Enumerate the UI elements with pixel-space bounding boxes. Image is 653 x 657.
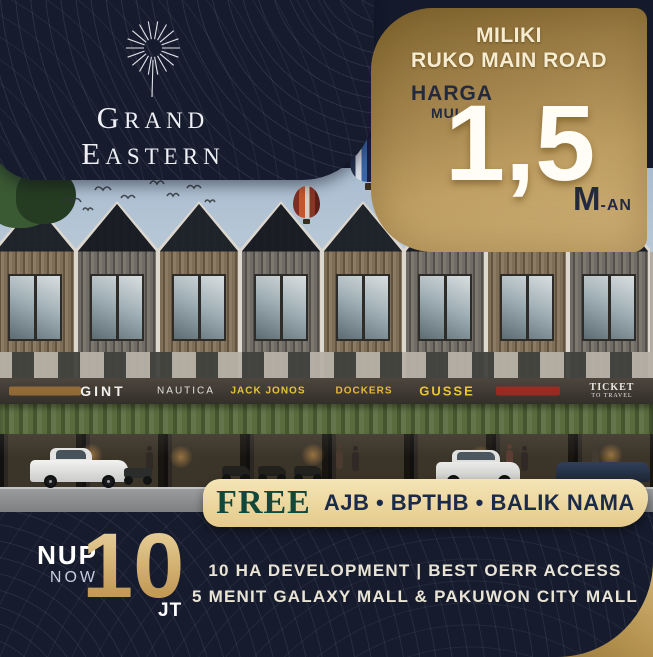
shop-sign-illegible-red — [496, 387, 560, 396]
car-window — [457, 452, 495, 460]
pedestrian — [336, 450, 343, 469]
pedestrian — [352, 452, 359, 471]
hedge-planter — [0, 404, 653, 434]
wheel — [44, 475, 57, 488]
bicycle — [124, 468, 152, 478]
shop-sign-ticket: TICKET TO TRAVEL — [590, 382, 635, 400]
car-window — [56, 450, 86, 459]
motorbike — [258, 466, 286, 476]
motorbike — [294, 466, 322, 476]
motorbike — [222, 466, 250, 476]
pickup-truck — [30, 446, 128, 488]
shop-sign-jack-jonos: JACK JONOS — [230, 386, 305, 397]
shop-sign-gusse: GUSSE — [419, 384, 475, 399]
pedestrian — [521, 452, 528, 471]
shop-sign-illegible — [9, 387, 81, 396]
dandelion-starburst-icon — [118, 18, 188, 98]
free-benefits-banner: FREE AJB • BPTHB • BALIK NAMA — [203, 479, 648, 527]
shop-light — [168, 446, 194, 468]
shop-sign-dockers: DOCKERS — [335, 386, 392, 397]
balcony-band — [0, 352, 653, 379]
shop-sign-gint: GINT — [80, 383, 125, 399]
nup-value: 10 — [82, 520, 184, 612]
nup-unit: JT — [158, 600, 182, 622]
hot-air-balloon-icon — [293, 186, 320, 224]
shop-light — [300, 444, 326, 466]
bottom-info-band: NUP NOW 10 JT 10 HA DEVELOPMENT | BEST O… — [0, 512, 653, 657]
property-ad-poster: GINT NAUTICA JACK JONOS DOCKERS GUSSE TI… — [0, 0, 653, 657]
offer-headline-line1: MILIKI — [371, 24, 647, 48]
free-items: AJB • BPTHB • BALIK NAMA — [324, 490, 635, 516]
brand-name-line1: Grand — [48, 100, 258, 136]
price-unit: M-AN — [573, 180, 632, 218]
shop-sign-band: GINT NAUTICA JACK JONOS DOCKERS GUSSE TI… — [0, 378, 653, 404]
brand-panel: Grand Eastern — [0, 0, 374, 180]
brand-name-line2: Eastern — [48, 136, 258, 172]
offer-headline-line2: RUKO MAIN ROAD — [371, 49, 647, 73]
shop-sign-nautica: NAUTICA — [157, 386, 215, 397]
price-offer-panel: MILIKI RUKO MAIN ROAD HARGA MULAI 1,5 M-… — [371, 8, 647, 252]
wheel — [102, 475, 115, 488]
brand-logo: Grand Eastern — [48, 18, 258, 171]
free-label: FREE — [216, 484, 311, 522]
footer-usp-text: 10 HA DEVELOPMENT | BEST OERR ACCESS 5 M… — [190, 558, 640, 611]
footer-line2: 5 MENIT GALAXY MALL & PAKUWON CITY MALL — [190, 584, 640, 610]
footer-line1: 10 HA DEVELOPMENT | BEST OERR ACCESS — [190, 558, 640, 584]
